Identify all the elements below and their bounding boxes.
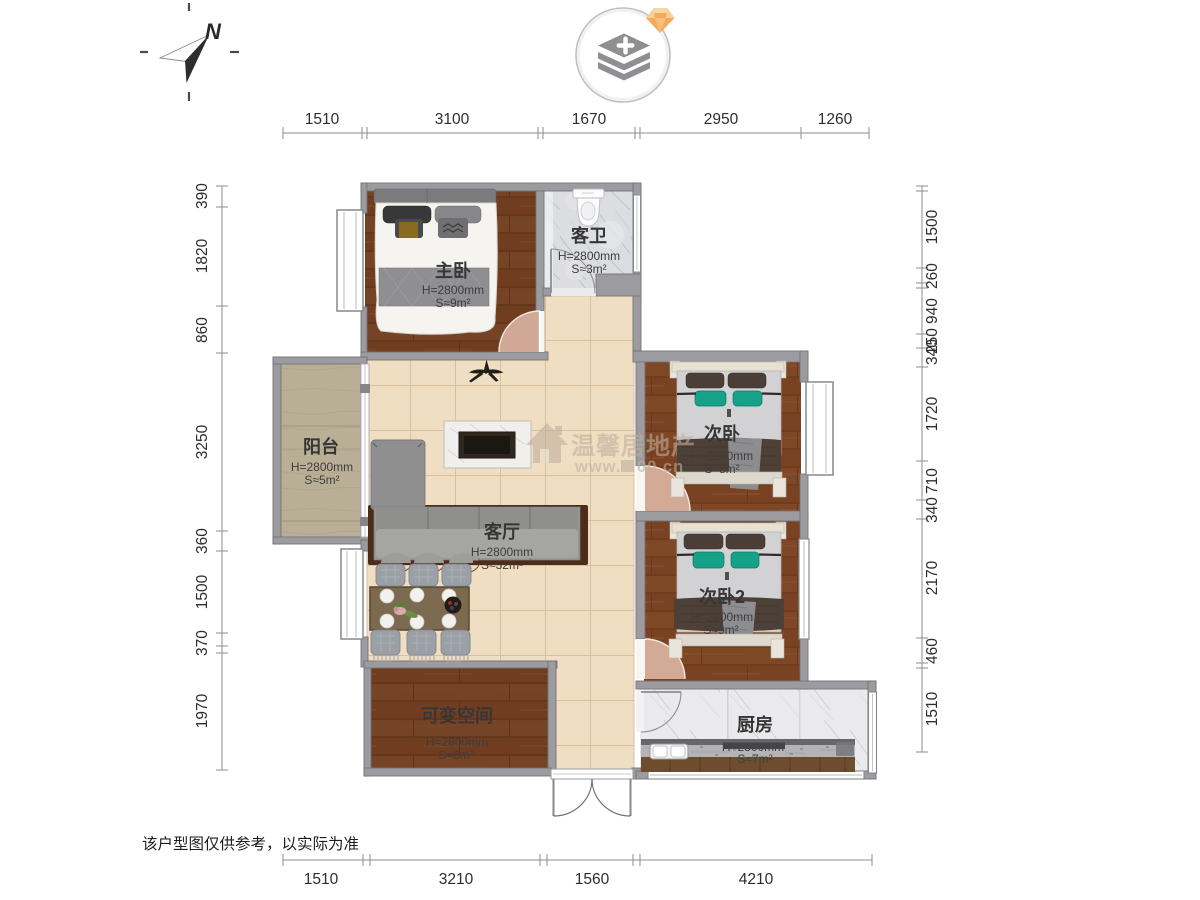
svg-text:360: 360 bbox=[194, 528, 211, 554]
svg-text:1560: 1560 bbox=[575, 871, 610, 888]
svg-text:3210: 3210 bbox=[439, 871, 474, 888]
svg-text:1500: 1500 bbox=[924, 209, 941, 244]
svg-text:阳台: 阳台 bbox=[303, 436, 339, 457]
svg-text:1670: 1670 bbox=[572, 111, 607, 128]
svg-text:H=2800mm: H=2800mm bbox=[422, 283, 484, 297]
svg-text:340: 340 bbox=[924, 497, 941, 523]
svg-text:主卧: 主卧 bbox=[435, 260, 471, 281]
svg-text:该户型图仅供参考，以实际为准: 该户型图仅供参考，以实际为准 bbox=[142, 835, 359, 853]
svg-text:S≈5m²: S≈5m² bbox=[304, 473, 339, 487]
svg-text:340: 340 bbox=[924, 339, 941, 365]
svg-text:1500: 1500 bbox=[194, 574, 211, 609]
svg-text:S≈9m²: S≈9m² bbox=[703, 623, 738, 637]
svg-text:客卫: 客卫 bbox=[571, 225, 607, 246]
svg-text:1720: 1720 bbox=[924, 396, 941, 431]
svg-text:1820: 1820 bbox=[194, 238, 211, 273]
svg-text:3100: 3100 bbox=[435, 111, 470, 128]
svg-text:H=2800mm: H=2800mm bbox=[691, 449, 753, 463]
svg-text:S≈3m²: S≈3m² bbox=[571, 262, 606, 276]
svg-text:N: N bbox=[205, 19, 222, 44]
svg-text:温馨居地产: 温馨居地产 bbox=[571, 432, 696, 460]
svg-text:厨房: 厨房 bbox=[737, 714, 773, 735]
svg-text:00.cn: 00.cn bbox=[637, 458, 684, 476]
svg-text:H=2800mm: H=2800mm bbox=[471, 545, 533, 559]
svg-text:次卧2: 次卧2 bbox=[699, 586, 745, 607]
svg-text:3250: 3250 bbox=[194, 424, 211, 459]
svg-text:S≈32m²: S≈32m² bbox=[481, 558, 523, 572]
svg-text:次卧: 次卧 bbox=[704, 423, 740, 444]
svg-text:H=2800mm: H=2800mm bbox=[426, 735, 488, 749]
svg-text:4210: 4210 bbox=[739, 871, 774, 888]
svg-text:710: 710 bbox=[924, 468, 941, 494]
svg-text:H=2800mm: H=2800mm bbox=[291, 460, 353, 474]
svg-text:940: 940 bbox=[924, 298, 941, 324]
svg-text:客厅: 客厅 bbox=[484, 521, 520, 542]
svg-text:S≈7m²: S≈7m² bbox=[737, 752, 772, 766]
svg-text:S≈6m²: S≈6m² bbox=[438, 748, 473, 762]
svg-text:H=2800mm: H=2800mm bbox=[691, 610, 753, 624]
svg-text:H=2800mm: H=2800mm bbox=[558, 249, 620, 263]
svg-text:S≈9m²: S≈9m² bbox=[435, 296, 470, 310]
svg-text:S≈8m²: S≈8m² bbox=[704, 462, 739, 476]
svg-text:370: 370 bbox=[194, 630, 211, 656]
svg-text:2170: 2170 bbox=[924, 560, 941, 595]
svg-text:1510: 1510 bbox=[924, 691, 941, 726]
svg-text:www.f: www.f bbox=[574, 458, 628, 476]
svg-text:1510: 1510 bbox=[304, 871, 339, 888]
svg-text:1260: 1260 bbox=[818, 111, 853, 128]
svg-text:可变空间: 可变空间 bbox=[421, 705, 493, 726]
svg-text:2950: 2950 bbox=[704, 111, 739, 128]
svg-text:860: 860 bbox=[194, 317, 211, 343]
svg-text:260: 260 bbox=[924, 263, 941, 289]
svg-text:1510: 1510 bbox=[305, 111, 340, 128]
svg-text:1970: 1970 bbox=[194, 693, 211, 728]
svg-text:460: 460 bbox=[924, 638, 941, 664]
svg-text:390: 390 bbox=[194, 183, 211, 209]
